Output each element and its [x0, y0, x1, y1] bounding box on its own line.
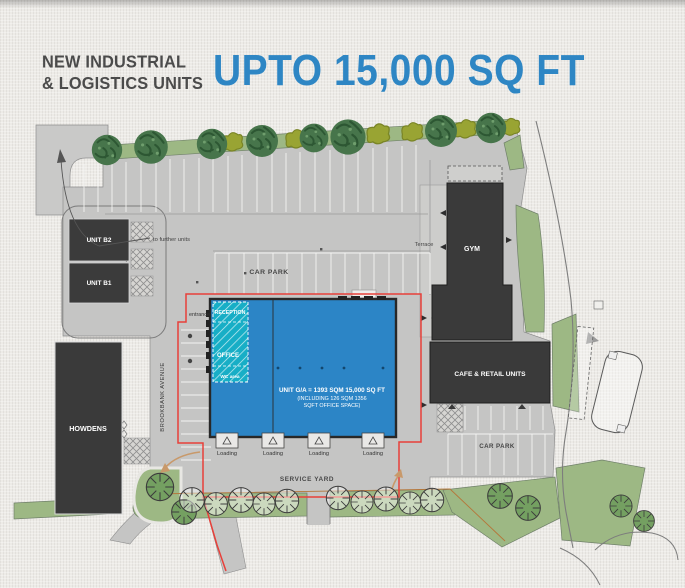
- unit-gia-line3: SQFT OFFICE SPACE): [304, 403, 361, 409]
- brookbank-avenue-label: BROOKBANK AVENUE: [160, 362, 166, 431]
- unit-gia-line2: (INCLUDING 126 SQM 1356: [297, 396, 366, 402]
- road-square: [594, 301, 603, 309]
- gym-label: GYM: [464, 246, 480, 253]
- loading-dock: [308, 433, 330, 448]
- gym-canopy: [448, 166, 502, 181]
- vehicle-outline: [589, 349, 645, 436]
- unit-b1-label: UNIT B1: [87, 280, 112, 287]
- kerb-roundabout-b: [560, 548, 600, 585]
- site-plan-page: NEW INDUSTRIAL & LOGISTICS UNITS UPTO 15…: [0, 0, 685, 588]
- entrance-label: entrance: [189, 312, 210, 318]
- loading-dock: [362, 433, 384, 448]
- office-label: OFFICE: [217, 353, 239, 359]
- howdens-label: HOWDENS: [69, 424, 107, 433]
- loading-dock: [216, 433, 238, 448]
- terrace-label: Terrace: [415, 242, 434, 248]
- road-furniture: [568, 301, 645, 435]
- cafe-retail-label: CAFE & RETAIL UNITS: [454, 371, 526, 378]
- site-plan-drawing: to further units UNIT B2 UNIT B1 CAR PAR…: [0, 0, 685, 588]
- to-further-units-label: to further units: [153, 237, 190, 243]
- loading-label-4: Loading: [363, 451, 383, 457]
- loading-label-2: Loading: [263, 451, 283, 457]
- reception-label: RECEPTION: [215, 310, 246, 316]
- unit-gia-line1: UNIT G/A = 1393 SQM 15,000 SQ FT: [279, 387, 385, 394]
- car-park-bottom-label: CAR PARK: [479, 443, 515, 450]
- loading-label-1: Loading: [217, 451, 237, 457]
- loading-label-3: Loading: [309, 451, 329, 457]
- loading-dock: [262, 433, 284, 448]
- car-park-top-label: CAR PARK: [249, 269, 288, 276]
- unit-b2-label: UNIT B2: [87, 237, 112, 244]
- wc-area-label: WC area: [220, 374, 240, 380]
- service-yard-label: SERVICE YARD: [280, 476, 334, 483]
